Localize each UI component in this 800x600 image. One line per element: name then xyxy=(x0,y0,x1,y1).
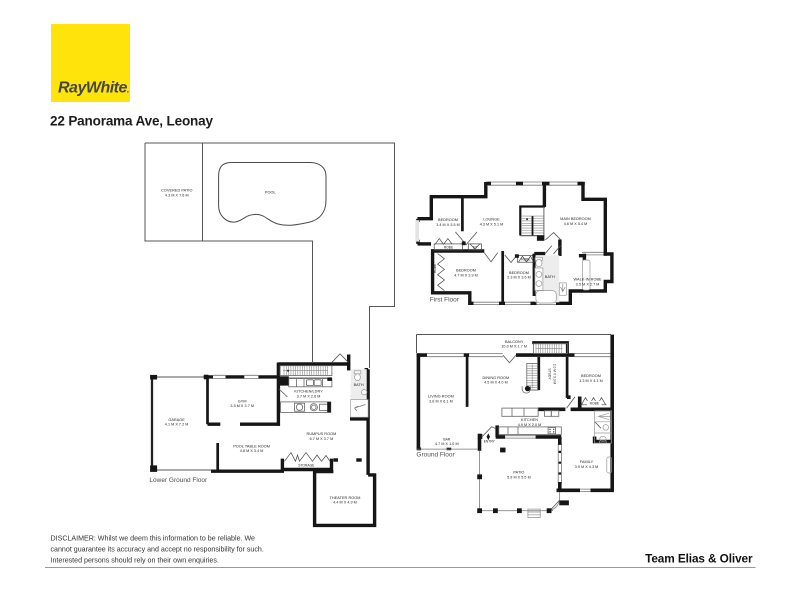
svg-text:6.7 M X 3.7 M: 6.7 M X 3.7 M xyxy=(310,437,334,441)
svg-text:Ground Floor: Ground Floor xyxy=(416,451,455,458)
svg-text:Lower Ground Floor: Lower Ground Floor xyxy=(149,477,208,484)
svg-text:3.5 M X 2.7 M: 3.5 M X 2.7 M xyxy=(576,282,600,286)
svg-text:RUMPUS ROOM: RUMPUS ROOM xyxy=(306,432,336,436)
svg-text:POOL: POOL xyxy=(265,191,276,195)
svg-text:4.8 M X 3.4 M: 4.8 M X 3.4 M xyxy=(240,449,264,453)
svg-text:THEATER ROOM: THEATER ROOM xyxy=(330,496,361,500)
svg-text:DINING ROOM: DINING ROOM xyxy=(483,376,510,380)
svg-text:4.7 M X 1.0 M: 4.7 M X 1.0 M xyxy=(435,442,459,446)
svg-text:4.7 M X 3.9 M: 4.7 M X 3.9 M xyxy=(454,273,478,277)
svg-text:BALCONY: BALCONY xyxy=(505,340,524,344)
svg-text:MAIN BEDROOM: MAIN BEDROOM xyxy=(560,217,591,221)
svg-text:KITCHEN/LDRY: KITCHEN/LDRY xyxy=(294,390,323,394)
svg-text:3.3 M X 4.1 M: 3.3 M X 4.1 M xyxy=(579,379,603,383)
svg-text:PATIO: PATIO xyxy=(513,471,524,475)
svg-text:22 Panorama Ave, Leonay: 22 Panorama Ave, Leonay xyxy=(50,114,214,129)
svg-text:WALK-IN ROBE: WALK-IN ROBE xyxy=(574,278,603,282)
svg-text:STORAGE: STORAGE xyxy=(298,463,315,467)
svg-text:GARAGE: GARAGE xyxy=(168,418,185,422)
svg-text:BEDROOM: BEDROOM xyxy=(456,269,476,273)
svg-text:ROBE: ROBE xyxy=(590,402,600,406)
svg-text:BEDROOM: BEDROOM xyxy=(509,271,529,275)
svg-text:ROBE: ROBE xyxy=(444,246,454,250)
svg-text:FAMILY: FAMILY xyxy=(580,460,594,464)
svg-text:Interested persons should rely: Interested persons should rely on their … xyxy=(51,557,219,565)
svg-text:2.3 M X 3.6 M: 2.3 M X 3.6 M xyxy=(507,276,531,280)
svg-text:BEDROOM: BEDROOM xyxy=(438,218,458,222)
svg-text:RayWhite.: RayWhite. xyxy=(58,80,129,97)
svg-text:Team Elias & Oliver: Team Elias & Oliver xyxy=(645,552,753,566)
svg-text:4.3 M X 5.1 M: 4.3 M X 5.1 M xyxy=(480,223,504,227)
svg-text:ENTRY: ENTRY xyxy=(484,439,496,443)
svg-text:3.5 M X 3.7 M: 3.5 M X 3.7 M xyxy=(230,404,254,408)
svg-text:4.6 M X 5.4 M: 4.6 M X 5.4 M xyxy=(564,222,588,226)
svg-text:3.7 M X 2.6 M: 3.7 M X 2.6 M xyxy=(297,395,321,399)
svg-text:4.3 M X 7.6 M: 4.3 M X 7.6 M xyxy=(165,194,189,198)
svg-text:10.0 M X 1.7 M: 10.0 M X 1.7 M xyxy=(501,345,527,349)
svg-text:BATH: BATH xyxy=(545,275,555,279)
svg-text:ROBE: ROBE xyxy=(433,263,437,273)
svg-text:COVERED PATIO: COVERED PATIO xyxy=(161,189,192,193)
svg-text:4.9 M X 2.0 M: 4.9 M X 2.0 M xyxy=(518,423,542,427)
svg-text:BEDROOM: BEDROOM xyxy=(581,374,601,378)
svg-text:GYM: GYM xyxy=(238,399,247,403)
svg-text:cannot guarantee its accuracy: cannot guarantee its accuracy and accept… xyxy=(51,546,264,554)
svg-text:DISCLAIMER: Whilst we deem thi: DISCLAIMER: Whilst we deem this informat… xyxy=(51,535,256,543)
svg-text:3.6 M X 6.1 M: 3.6 M X 6.1 M xyxy=(429,399,453,403)
svg-text:4.1 M X 7.2 M: 4.1 M X 7.2 M xyxy=(165,423,189,427)
svg-text:4.4 M X 4.9 M: 4.4 M X 4.9 M xyxy=(333,501,357,505)
svg-text:ROBE: ROBE xyxy=(521,258,531,262)
svg-text:ST: ST xyxy=(473,246,477,250)
svg-text:2.0 M X 3.0 M: 2.0 M X 3.0 M xyxy=(553,364,557,385)
svg-text:3.4 M X 3.5 M: 3.4 M X 3.5 M xyxy=(436,223,460,227)
svg-text:BAR: BAR xyxy=(443,438,450,442)
svg-text:STUDY: STUDY xyxy=(548,368,552,380)
svg-text:4.5 M X 4.0 M: 4.5 M X 4.0 M xyxy=(484,381,508,385)
svg-text:BATH: BATH xyxy=(354,383,364,387)
svg-text:3.9 M X 4.3 M: 3.9 M X 4.3 M xyxy=(575,465,599,469)
svg-text:5.9 M X 5.5 M: 5.9 M X 5.5 M xyxy=(507,475,531,479)
svg-text:KITCHEN: KITCHEN xyxy=(521,418,538,422)
svg-text:LIVING ROOM: LIVING ROOM xyxy=(428,395,454,399)
svg-text:First Floor: First Floor xyxy=(430,297,460,304)
svg-text:LOUNGE: LOUNGE xyxy=(483,218,500,222)
svg-text:POOL TABLE ROOM: POOL TABLE ROOM xyxy=(233,444,270,448)
